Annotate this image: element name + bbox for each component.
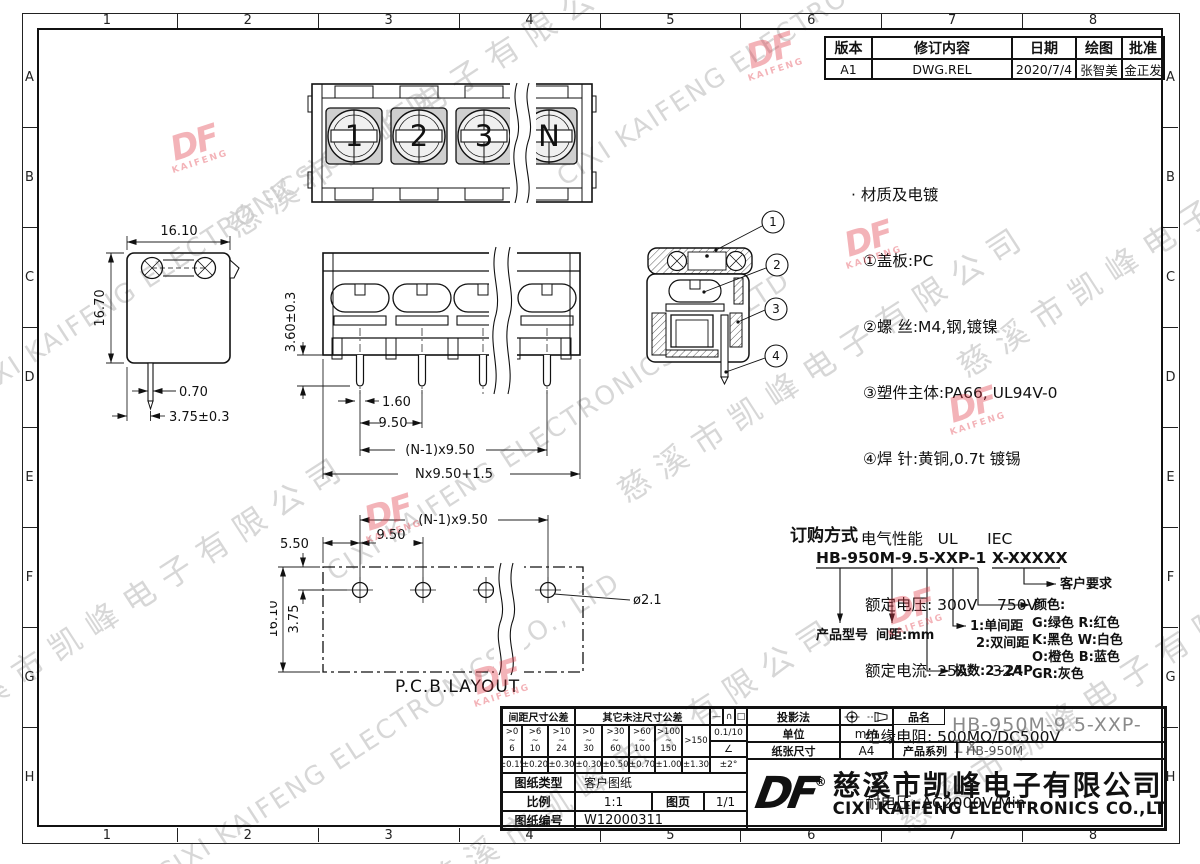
top-view-drawing: 1 2 3 N <box>306 80 598 206</box>
sheet-type-label: 图纸类型 <box>502 773 575 792</box>
zone-rows-left: ABCDEFGH <box>22 28 37 827</box>
revision-cell: 金正发 <box>1122 59 1164 79</box>
drawing-page: CIXI KAIFENG ELECTRONICS CO., LTD 慈溪市凯峰电… <box>0 0 1200 864</box>
dim-pin-width: 0.70 <box>179 385 208 400</box>
paper-label: 纸张尺寸 <box>747 742 840 759</box>
label-single-pitch: 1:单间距 <box>970 618 1023 634</box>
callout-1: 1 <box>769 215 777 229</box>
tol-pitch-header: 间距尺寸公差 <box>502 708 575 725</box>
tol-range: >10 ~ 24 <box>548 725 575 757</box>
front-view-dim-text: 3.60±0.3 1.60 9.50 (N-1)x9.50 Nx9.50+1.5 <box>284 292 493 482</box>
side-view-drawing: 16.10 16.70 0.70 3.75±0.3 <box>84 216 274 428</box>
pole-label: 2 <box>410 119 428 153</box>
registered-mark: ® <box>815 775 827 789</box>
angle-icon: ∠ <box>710 741 747 757</box>
drawing-no-value: W12000311 <box>575 811 747 829</box>
dim-offset: 3.75 <box>287 605 302 634</box>
product-series-value: HB-950M <box>957 742 1165 759</box>
revision-header: 版本 <box>825 37 872 59</box>
callout-2: 2 <box>773 258 781 272</box>
flatness-tol: 0.1/10 <box>710 725 747 741</box>
revision-cell: DWG.REL <box>872 59 1012 79</box>
tol-other-header: 其它未注尺寸公差 <box>575 708 710 725</box>
sheet-label: 图页 <box>652 792 704 811</box>
pcb-dimensions <box>278 515 630 672</box>
ordering-leaders <box>840 568 1056 671</box>
tol-value: ±1.00 <box>655 757 682 773</box>
dim-pitch: 9.50 <box>377 528 406 543</box>
drawing-no-label: 图纸编号 <box>502 811 575 829</box>
tol-value: ±0.20 <box>522 757 548 773</box>
note-line: ②螺 丝:M4,钢,镀镍 <box>851 316 1166 338</box>
zone-columns-top: 12345678 <box>37 13 1163 28</box>
flatness-icon: □ <box>735 708 747 725</box>
company-name-en: CIXI KAIFENG ELECTRONICS CO.,LTD <box>833 800 1165 817</box>
company-logo: DF <box>753 774 819 814</box>
dim-span: (N-1)x9.50 <box>405 443 474 458</box>
pole-label: 1 <box>345 119 363 153</box>
unit-value: mm <box>840 725 893 742</box>
label-poles: 极数:2~24P <box>954 663 1033 679</box>
label-double-pitch: 2:双间距 <box>976 635 1029 651</box>
dim-pin-length: 3.60±0.3 <box>284 292 299 353</box>
ordering-labels: 产品型号 间距:mm 极数:2~24P 1:单间距 2:双间距 颜色: G:绿色… <box>816 576 1123 682</box>
revision-header: 批准 <box>1122 37 1164 59</box>
tol-value: ±0.30 <box>548 757 575 773</box>
dim-edge: 5.50 <box>280 537 309 552</box>
arc-icon: ∩ <box>723 708 735 725</box>
revision-header: 修订内容 <box>872 37 1012 59</box>
tol-range-over: >150 <box>682 725 710 757</box>
dim-total: Nx9.50+1.5 <box>415 467 493 482</box>
company-cell: DF ® 慈溪市凯峰电子有限公司 CIXI KAIFENG ELECTRONIC… <box>747 759 1165 829</box>
angle-tol: ±2° <box>710 757 747 773</box>
break-lines <box>494 561 524 679</box>
company-name-cn: 慈溪市凯峰电子有限公司 <box>833 771 1165 800</box>
front-view-dimensions <box>297 342 580 479</box>
tol-value: ±1.30 <box>682 757 710 773</box>
tol-value: ±0.50 <box>602 757 629 773</box>
break-lines <box>489 246 517 396</box>
note-line: · 材质及电镀 <box>851 184 1166 206</box>
dim-pitch: 9.50 <box>379 416 408 431</box>
revision-cell: 张智美 <box>1076 59 1122 79</box>
color-option: GR:灰色 <box>1032 666 1084 682</box>
callout-numbers: 1 2 3 4 <box>769 215 781 363</box>
scale-label: 比例 <box>502 792 575 811</box>
section-body <box>647 248 752 384</box>
dim-span: (N-1)x9.50 <box>418 513 487 528</box>
label-model: 产品型号 <box>816 627 868 643</box>
unit-label: 单位 <box>747 725 840 742</box>
callout-3: 3 <box>772 302 780 316</box>
tol-range: >60 ~ 100 <box>629 725 655 757</box>
revision-cell: 2020/7/4 <box>1012 59 1076 79</box>
break-lines <box>510 82 536 204</box>
dim-pin-width: 1.60 <box>382 395 411 410</box>
tol-range: >6 ~ 10 <box>522 725 548 757</box>
ordering-code-main: HB-950M-9.5-XXP-1 <box>816 549 986 567</box>
pcb-holes <box>347 577 561 603</box>
pole-label: N <box>538 119 560 153</box>
sheet-type-value: 客户图纸 <box>575 773 747 792</box>
ordering-code-suffix: X-XXXXX <box>992 549 1068 567</box>
revision-cell: A1 <box>825 59 872 79</box>
pole-label: 3 <box>475 119 493 153</box>
tol-range: >30 ~ 60 <box>602 725 629 757</box>
front-view-drawing: 3.60±0.3 1.60 9.50 (N-1)x9.50 Nx9.50+1.5 <box>282 238 622 488</box>
note-line: ①盖板:PC <box>851 250 1166 272</box>
projection-symbol <box>840 708 893 725</box>
label-pitch: 间距:mm <box>876 627 934 643</box>
ordering-diagram: 订购方式 HB-950M-9.5-XXP-1 X-XXXXX 产品型号 间距:m… <box>780 523 1172 707</box>
side-view-dim-text: 16.10 16.70 0.70 3.75±0.3 <box>93 224 230 425</box>
tol-range: >100 ~ 150 <box>655 725 682 757</box>
dim-hole-diameter: ø2.1 <box>633 593 662 608</box>
revision-table: 版本 修订内容 日期 绘图 批准 A1 DWG.REL 2020/7/4 张智美… <box>824 36 1165 80</box>
callout-4: 4 <box>772 349 780 363</box>
wire-openings <box>331 284 576 325</box>
title-block: 间距尺寸公差 其它未注尺寸公差 — ∩ □ >0 ~ 6 >6 ~ 10 >10… <box>500 706 1167 831</box>
ordering-title: 订购方式 <box>790 525 858 546</box>
dim-width: 16.10 <box>160 224 197 239</box>
tol-range: >0 ~ 30 <box>575 725 602 757</box>
pcb-layout-caption: P.C.B.LAYOUT <box>395 677 520 697</box>
tol-value: ±0.15 <box>502 757 522 773</box>
label-customer-req: 客户要求 <box>1060 576 1113 592</box>
side-view-dimensions <box>106 236 230 421</box>
color-option: O:橙色 B:蓝色 <box>1032 649 1120 665</box>
company-block: DF ® 慈溪市凯峰电子有限公司 CIXI KAIFENG ELECTRONIC… <box>748 760 1164 828</box>
sheet-value: 1/1 <box>704 792 747 811</box>
front-view-body <box>323 253 580 359</box>
pcb-layout-drawing: (N-1)x9.50 5.50 9.50 16.10 3.75 ø2.1 P.C… <box>270 503 682 710</box>
section-view-drawing: 1 2 3 4 <box>616 200 800 400</box>
tol-value: ±0.30 <box>575 757 602 773</box>
straightness-icon: — <box>710 708 723 725</box>
revision-header: 日期 <box>1012 37 1076 59</box>
note-line: ④焊 针:黄铜,0.7t 镀锡 <box>851 448 1166 470</box>
dim-height: 16.70 <box>93 289 108 326</box>
dim-pin-offset: 3.75±0.3 <box>169 410 230 425</box>
color-option: K:黑色 W:白色 <box>1032 632 1123 648</box>
note-line: ③塑件主体:PA66, UL94V-0 <box>851 382 1166 404</box>
pcb-dim-text: (N-1)x9.50 5.50 9.50 16.10 3.75 ø2.1 P.C… <box>270 513 662 697</box>
product-series-label: 产品系列 <box>893 742 957 759</box>
tol-range: >0 ~ 6 <box>502 725 522 757</box>
first-angle-icon <box>843 710 891 724</box>
projection-label: 投影法 <box>747 708 840 725</box>
product-name-label: 品名 <box>893 708 945 725</box>
scale-value: 1:1 <box>575 792 652 811</box>
paper-value: A4 <box>840 742 893 759</box>
revision-header: 绘图 <box>1076 37 1122 59</box>
tol-value: ±0.70 <box>629 757 655 773</box>
label-color: 颜色: <box>1034 597 1065 613</box>
dim-height: 16.10 <box>270 600 281 637</box>
color-option: G:绿色 R:红色 <box>1032 615 1120 631</box>
